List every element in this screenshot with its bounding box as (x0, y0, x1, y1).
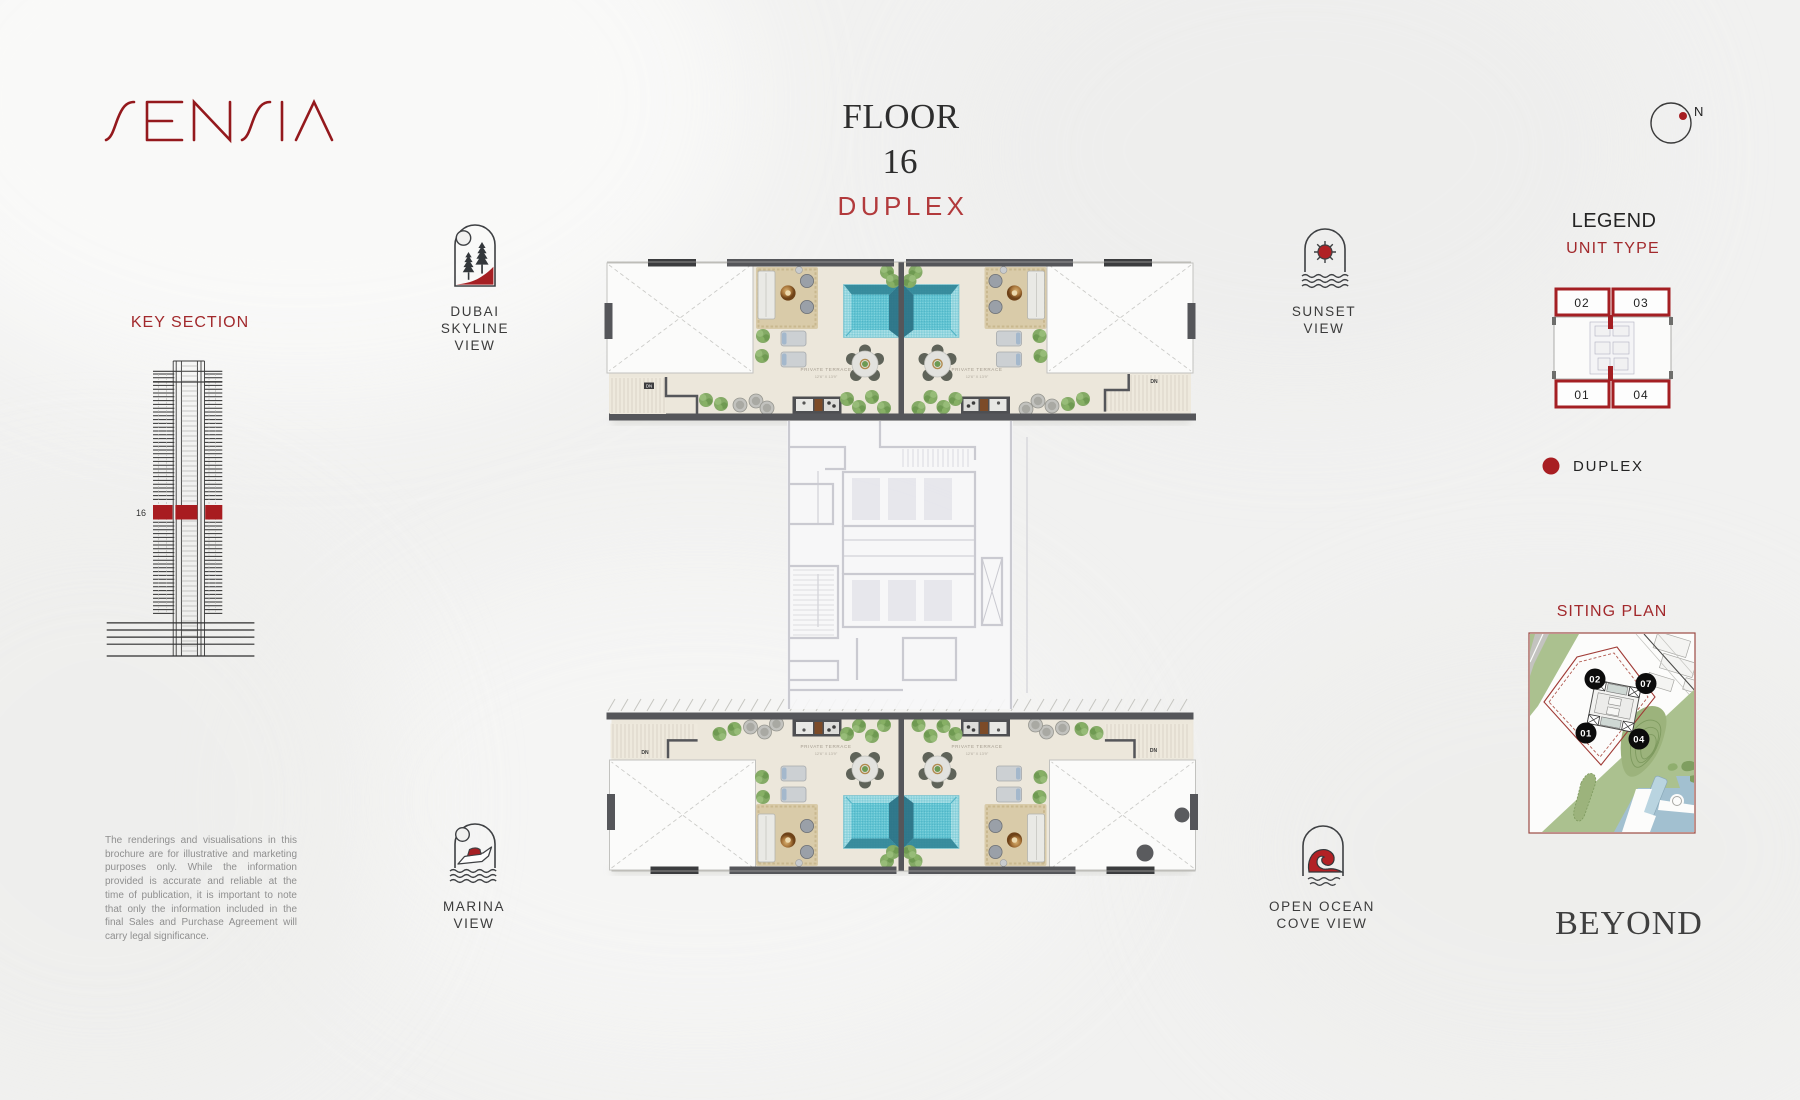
svg-text:DN: DN (641, 750, 649, 756)
svg-text:03: 03 (1633, 296, 1648, 310)
svg-text:PRIVATE TERRACE: PRIVATE TERRACE (800, 367, 851, 372)
svg-text:04: 04 (1633, 388, 1648, 402)
svg-text:DN: DN (1150, 748, 1158, 754)
svg-text:01: 01 (1574, 388, 1589, 402)
svg-text:12'6" X 13'9": 12'6" X 13'9" (815, 751, 838, 756)
svg-text:02: 02 (1589, 675, 1601, 686)
svg-text:02: 02 (1574, 296, 1589, 310)
svg-text:PRIVATE TERRACE: PRIVATE TERRACE (800, 744, 851, 749)
svg-text:12'6" X 13'9": 12'6" X 13'9" (815, 374, 838, 379)
svg-text:12'6" X 13'9": 12'6" X 13'9" (966, 374, 989, 379)
svg-text:16: 16 (136, 508, 146, 518)
svg-text:07: 07 (1640, 679, 1652, 690)
svg-text:PRIVATE TERRACE: PRIVATE TERRACE (951, 744, 1002, 749)
svg-text:12'6" X 13'9": 12'6" X 13'9" (966, 751, 989, 756)
svg-text:N: N (1694, 104, 1703, 119)
svg-text:PRIVATE TERRACE: PRIVATE TERRACE (951, 367, 1002, 372)
svg-text:01: 01 (1580, 729, 1592, 740)
svg-text:DN: DN (1150, 379, 1158, 385)
svg-text:04: 04 (1633, 735, 1645, 746)
svg-text:DN: DN (646, 384, 652, 389)
